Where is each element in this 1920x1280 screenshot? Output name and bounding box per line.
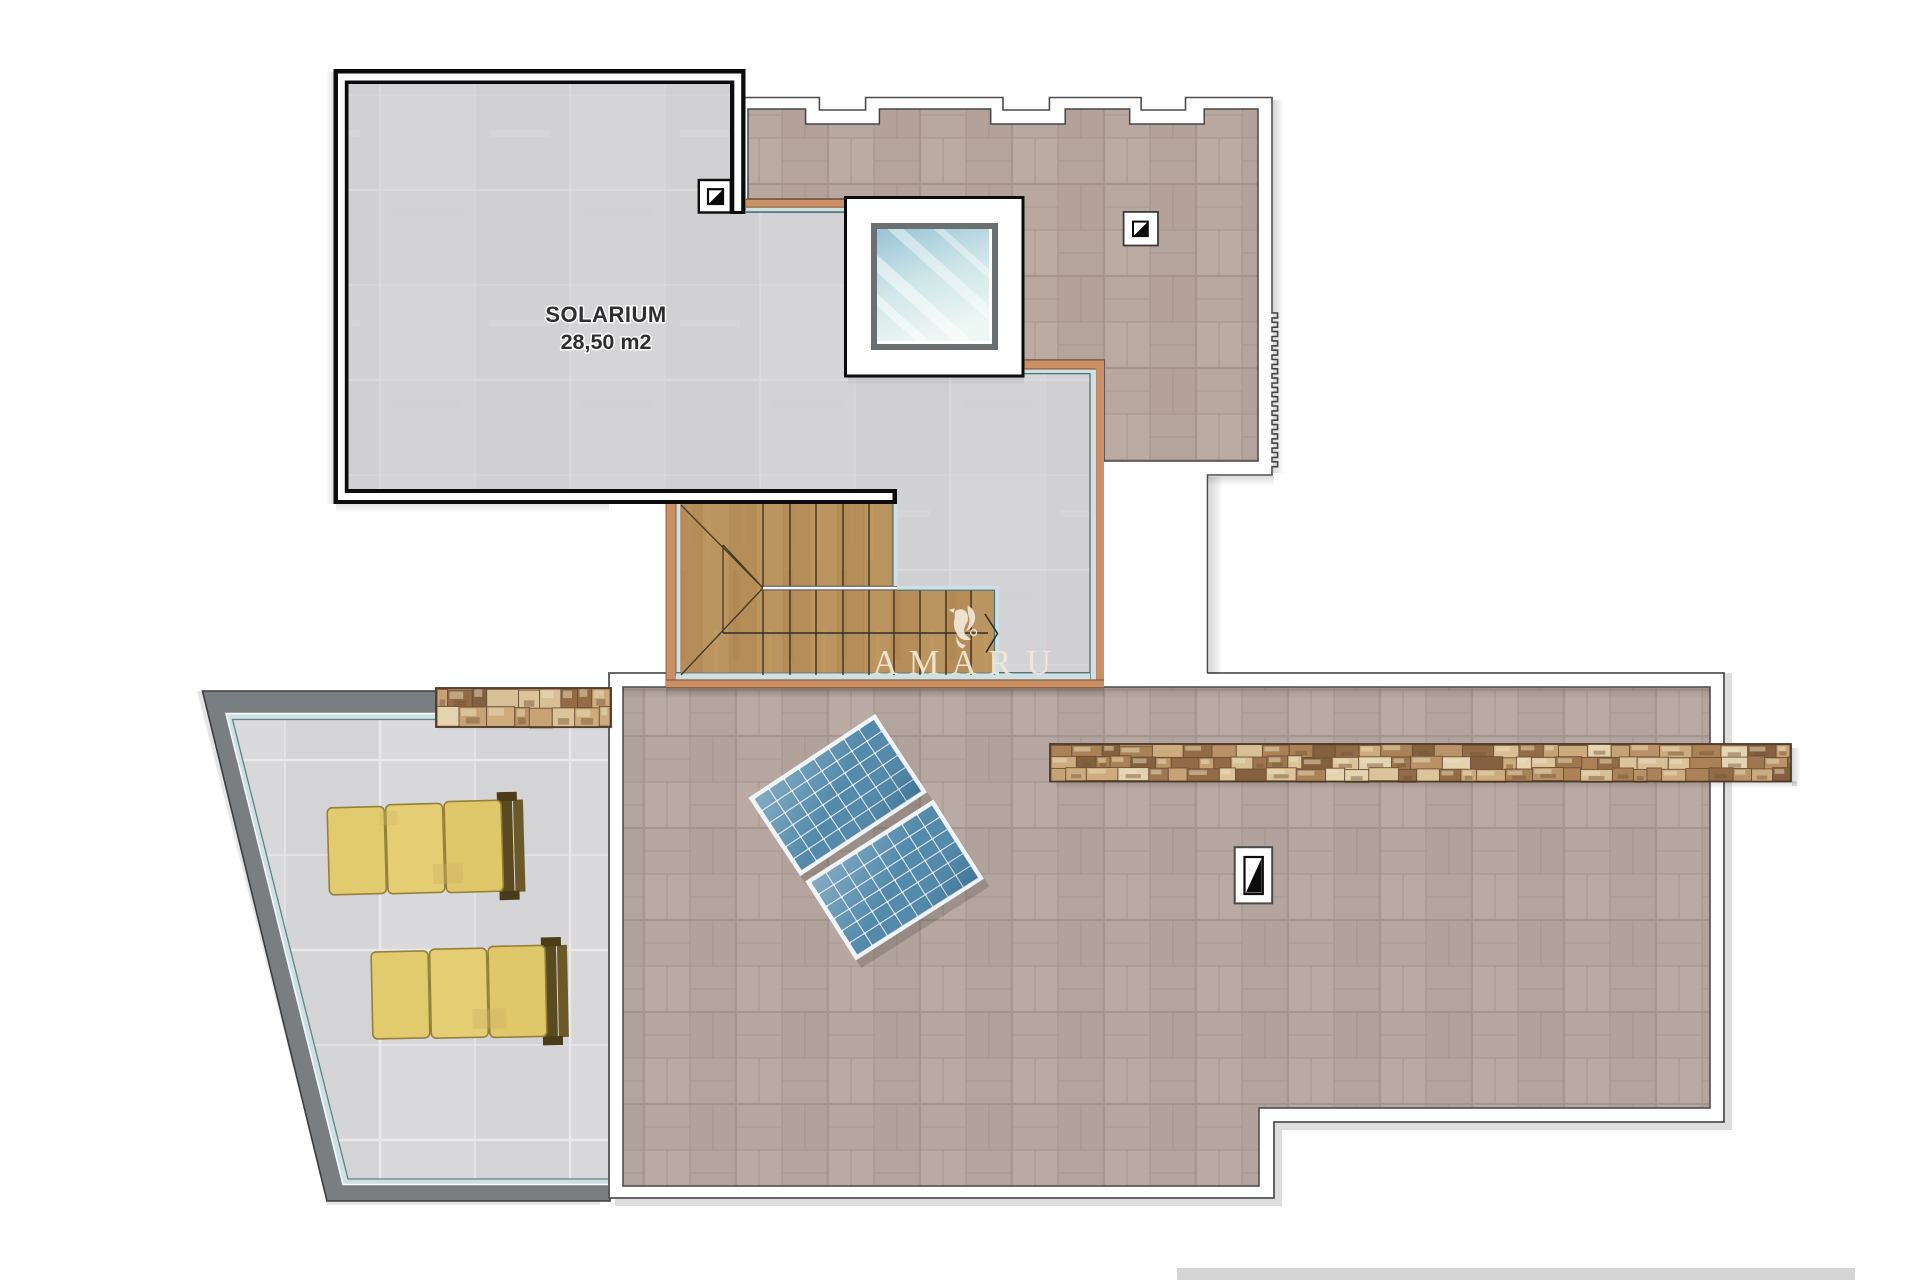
svg-text:28,50 m2: 28,50 m2 (561, 330, 652, 354)
svg-text:SOLARIUM: SOLARIUM (545, 302, 666, 327)
